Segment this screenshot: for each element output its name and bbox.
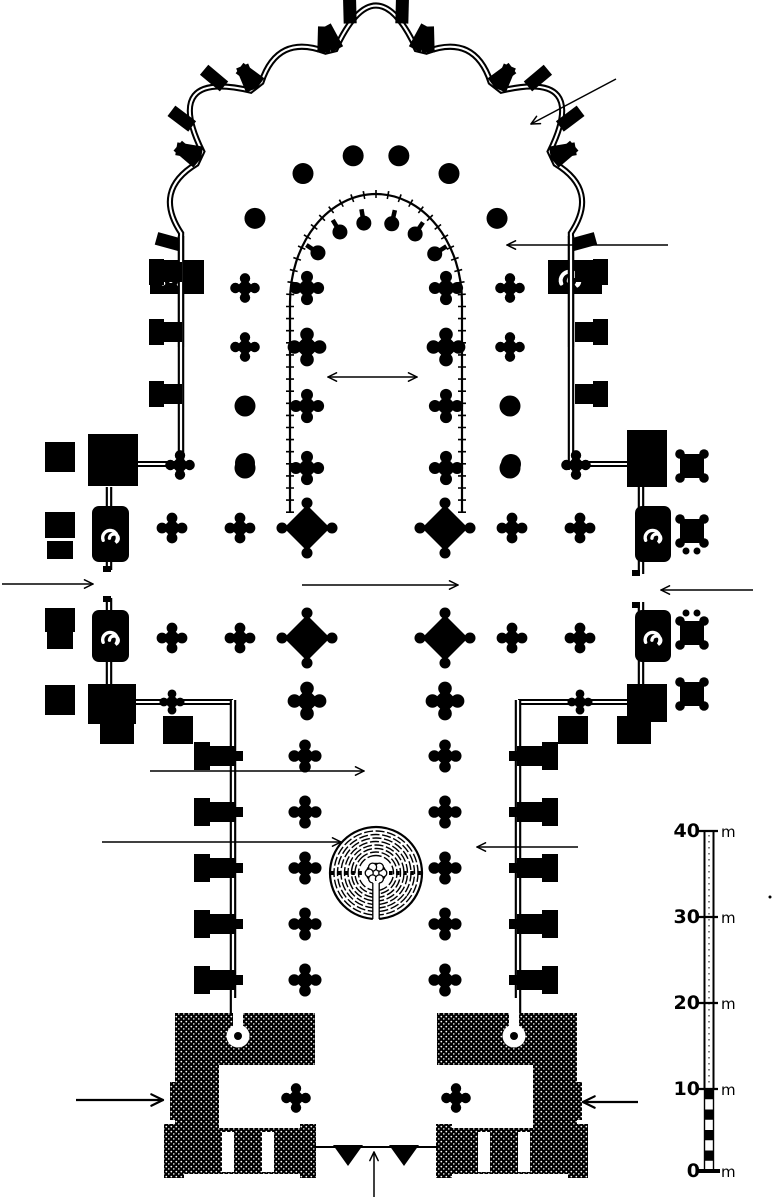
crossing-piers bbox=[276, 497, 475, 668]
chevet-buttress bbox=[395, 0, 409, 24]
labyrinth bbox=[322, 819, 430, 927]
west-towers bbox=[164, 998, 588, 1178]
choir bbox=[149, 236, 608, 485]
west-portal-jamb bbox=[389, 1145, 419, 1166]
arrow-north-transept-portal bbox=[2, 580, 93, 588]
scale-unit-label: m bbox=[721, 909, 736, 927]
hemicycle-piers bbox=[306, 209, 446, 261]
transept-piers bbox=[100, 450, 651, 744]
scale-tick-label: 20 bbox=[674, 992, 700, 1014]
arrow-nave bbox=[150, 767, 364, 775]
arrow-labyrinth bbox=[102, 838, 341, 846]
west-portal-jamb bbox=[333, 1145, 363, 1166]
transept-porch-piers bbox=[45, 442, 709, 715]
arrow-south-aisle bbox=[477, 843, 578, 851]
scale-unit-label: m bbox=[721, 1163, 736, 1181]
arrow-south-transept-portal bbox=[661, 586, 753, 594]
scale-tick-label: 10 bbox=[674, 1078, 700, 1100]
scale-bar: 40m30m20m10m0m bbox=[674, 820, 736, 1182]
arrow-choir-width bbox=[328, 373, 417, 381]
scale-unit-label: m bbox=[721, 1081, 736, 1099]
arrow-crossing bbox=[302, 581, 458, 589]
apse-radiating-chapels bbox=[155, 0, 598, 347]
ambulatory-columns bbox=[244, 145, 507, 229]
chevet-buttress bbox=[343, 0, 357, 24]
cathedral-floor-plan: 40m30m20m10m0m bbox=[0, 0, 783, 1200]
scanned-plan-sheet: 40m30m20m10m0m bbox=[0, 0, 783, 1200]
chevet-buttress bbox=[317, 26, 331, 52]
scale-tick-label: 30 bbox=[674, 906, 700, 928]
speck-artifact bbox=[769, 896, 772, 899]
scale-tick-label: 40 bbox=[674, 820, 700, 842]
scale-unit-label: m bbox=[721, 995, 736, 1013]
arrow-west-portal bbox=[370, 1152, 378, 1197]
arrow-southwest-tower bbox=[583, 1096, 638, 1107]
scale-unit-label: m bbox=[721, 823, 736, 841]
arrow-northwest-tower bbox=[76, 1094, 163, 1105]
